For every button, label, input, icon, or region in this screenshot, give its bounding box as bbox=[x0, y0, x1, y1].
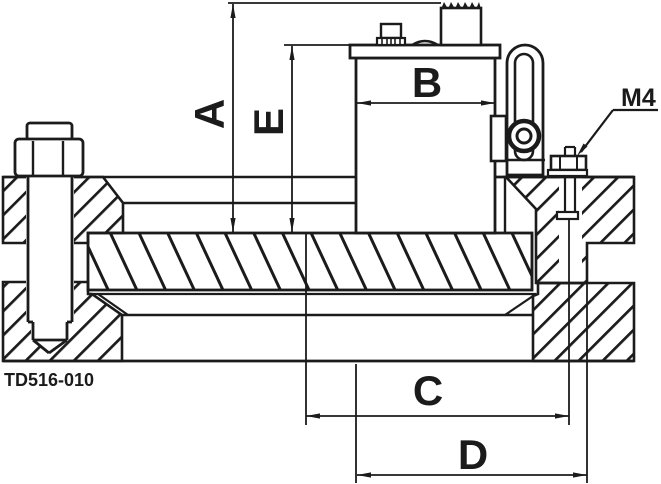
dim-label-b: B bbox=[412, 59, 442, 106]
m4-tapped-hole bbox=[559, 178, 582, 282]
lever-bracket bbox=[491, 116, 506, 161]
knurled-knob bbox=[441, 8, 481, 45]
m4-nut bbox=[551, 156, 586, 170]
technical-drawing-canvas: A E B C D M4 TD516-010 bbox=[0, 0, 661, 484]
m4-stud-end bbox=[557, 212, 578, 219]
knurl-serration bbox=[441, 2, 481, 9]
dim-label-e: E bbox=[245, 108, 292, 136]
bolt-hex-head bbox=[15, 139, 83, 176]
clamp-flange-cap bbox=[350, 45, 500, 58]
clamp-body bbox=[350, 2, 500, 233]
bolt-cap bbox=[27, 123, 72, 140]
workpiece-bar bbox=[88, 233, 532, 290]
dim-label-d: D bbox=[458, 431, 488, 478]
part-number: TD516-010 bbox=[4, 370, 94, 390]
toggle-lever bbox=[491, 45, 545, 175]
pocket-chamfer-right bbox=[505, 296, 533, 315]
clamp-assembly-drawing: A E B C D M4 TD516-010 bbox=[0, 0, 661, 484]
dim-label-c: C bbox=[413, 367, 443, 414]
m4-washer bbox=[548, 170, 587, 176]
thread-size-label: M4 bbox=[621, 84, 656, 112]
lower-plate bbox=[3, 282, 634, 361]
dim-label-a: A bbox=[186, 99, 233, 129]
small-knob bbox=[381, 24, 401, 38]
lower-plate-right bbox=[533, 283, 634, 361]
leader-arrowhead bbox=[577, 144, 588, 157]
pivot-pin bbox=[517, 129, 531, 143]
m4-leader bbox=[577, 110, 658, 156]
